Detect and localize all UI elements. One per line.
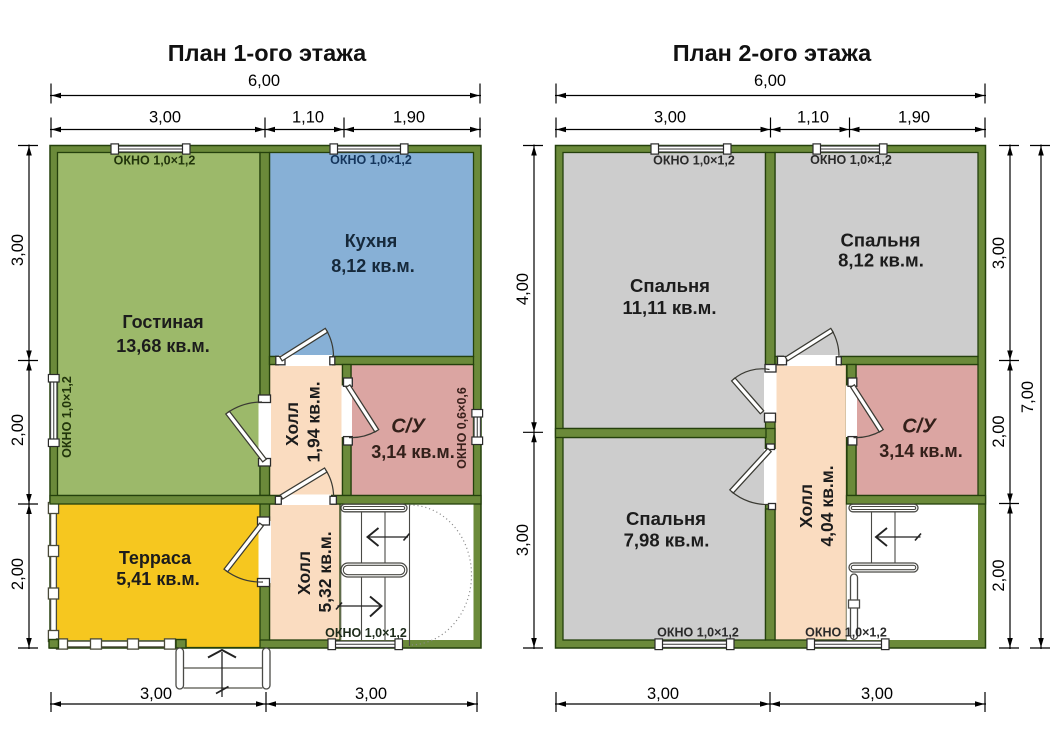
svg-text:8,12 кв.м.: 8,12 кв.м. bbox=[838, 250, 924, 271]
svg-text:11,11 кв.м.: 11,11 кв.м. bbox=[623, 297, 717, 318]
svg-text:Холл: Холл bbox=[796, 484, 816, 528]
svg-text:ОКНО 1,0×1,2: ОКНО 1,0×1,2 bbox=[330, 153, 412, 167]
svg-text:3,00: 3,00 bbox=[647, 685, 679, 703]
svg-text:3,00: 3,00 bbox=[355, 685, 387, 703]
svg-text:Терраса: Терраса bbox=[119, 548, 192, 568]
svg-text:7,98 кв.м.: 7,98 кв.м. bbox=[624, 530, 710, 551]
svg-text:4,04 кв.м.: 4,04 кв.м. bbox=[817, 465, 837, 546]
svg-text:1,94 кв.м.: 1,94 кв.м. bbox=[304, 381, 324, 462]
svg-text:ОКНО 1,0×1,2: ОКНО 1,0×1,2 bbox=[325, 626, 407, 640]
svg-text:1,90: 1,90 bbox=[393, 109, 425, 127]
svg-text:Гостиная: Гостиная bbox=[122, 312, 203, 332]
svg-text:3,00: 3,00 bbox=[654, 109, 686, 127]
svg-text:6,00: 6,00 bbox=[754, 72, 786, 90]
svg-text:Холл: Холл bbox=[282, 402, 302, 446]
svg-text:8,12 кв.м.: 8,12 кв.м. bbox=[331, 256, 414, 276]
svg-text:2,00: 2,00 bbox=[990, 559, 1008, 591]
svg-text:2,00: 2,00 bbox=[9, 414, 27, 446]
svg-text:1,10: 1,10 bbox=[797, 109, 829, 127]
svg-text:7,00: 7,00 bbox=[1019, 381, 1037, 413]
svg-text:1,90: 1,90 bbox=[898, 109, 930, 127]
svg-text:С/У: С/У bbox=[902, 416, 937, 438]
svg-text:3,14 кв.м.: 3,14 кв.м. bbox=[879, 441, 962, 461]
svg-text:4,00: 4,00 bbox=[514, 273, 532, 305]
svg-text:5,41 кв.м.: 5,41 кв.м. bbox=[116, 569, 199, 589]
svg-text:Холл: Холл bbox=[294, 551, 314, 595]
svg-text:3,00: 3,00 bbox=[9, 234, 27, 266]
svg-text:3,00: 3,00 bbox=[861, 685, 893, 703]
svg-text:13,68 кв.м.: 13,68 кв.м. bbox=[116, 336, 209, 356]
svg-text:2,00: 2,00 bbox=[9, 558, 27, 590]
svg-text:Спальня: Спальня bbox=[626, 508, 706, 529]
svg-text:ОКНО 1,0×1,2: ОКНО 1,0×1,2 bbox=[657, 626, 739, 640]
svg-text:3,00: 3,00 bbox=[149, 109, 181, 127]
svg-text:ОКНО 0,6×0,6: ОКНО 0,6×0,6 bbox=[455, 387, 469, 469]
svg-text:ОКНО 1,0×1,2: ОКНО 1,0×1,2 bbox=[114, 154, 196, 168]
svg-text:3,00: 3,00 bbox=[140, 685, 172, 703]
svg-text:3,14 кв.м.: 3,14 кв.м. bbox=[371, 442, 454, 462]
svg-text:ОКНО 1,0×1,2: ОКНО 1,0×1,2 bbox=[810, 153, 892, 167]
svg-text:План 1-ого этажа: План 1-ого этажа bbox=[168, 40, 367, 66]
svg-text:Спальня: Спальня bbox=[630, 275, 710, 296]
svg-text:Спальня: Спальня bbox=[841, 230, 921, 251]
svg-text:6,00: 6,00 bbox=[248, 72, 280, 90]
svg-text:ОКНО 1,0×1,2: ОКНО 1,0×1,2 bbox=[805, 626, 887, 640]
svg-text:3,00: 3,00 bbox=[990, 237, 1008, 269]
svg-text:С/У: С/У bbox=[391, 416, 426, 438]
svg-text:ОКНО 1,0×1,2: ОКНО 1,0×1,2 bbox=[653, 154, 735, 168]
svg-text:5,32 кв.м.: 5,32 кв.м. bbox=[315, 531, 335, 612]
svg-text:Кухня: Кухня bbox=[345, 231, 398, 251]
svg-text:ОКНО 1,0×1,2: ОКНО 1,0×1,2 bbox=[60, 376, 74, 458]
svg-text:1,10: 1,10 bbox=[292, 109, 324, 127]
svg-text:План 2-ого этажа: План 2-ого этажа bbox=[673, 40, 872, 66]
svg-text:3,00: 3,00 bbox=[514, 524, 532, 556]
svg-text:2,00: 2,00 bbox=[990, 415, 1008, 447]
